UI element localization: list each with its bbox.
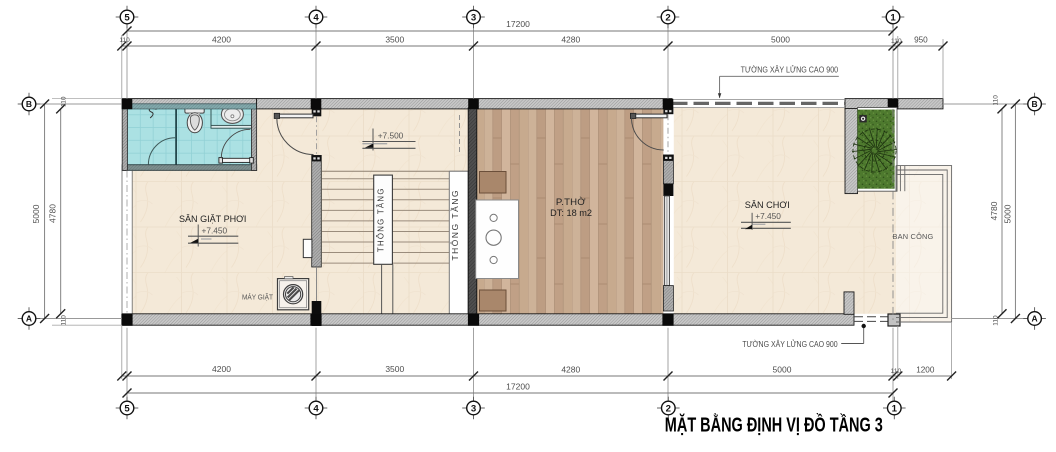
svg-text:4280: 4280 — [561, 35, 580, 45]
svg-text:SÂN GIẶT PHƠI: SÂN GIẶT PHƠI — [179, 214, 247, 225]
svg-text:THÔNG TẦNG: THÔNG TẦNG — [375, 187, 385, 252]
svg-text:110: 110 — [60, 315, 67, 326]
svg-text:110: 110 — [993, 95, 1000, 106]
svg-text:5000: 5000 — [773, 365, 792, 375]
svg-text:1200: 1200 — [916, 366, 935, 375]
svg-text:17200: 17200 — [506, 382, 530, 392]
svg-text:+7.450: +7.450 — [201, 226, 227, 236]
svg-text:MẶT BẰNG ĐỊNH VỊ ĐỒ TẦNG 3: MẶT BẰNG ĐỊNH VỊ ĐỒ TẦNG 3 — [665, 413, 883, 437]
svg-text:110: 110 — [60, 96, 67, 107]
svg-text:3: 3 — [471, 403, 476, 414]
svg-text:5000: 5000 — [1003, 204, 1013, 223]
svg-text:+7.450: +7.450 — [755, 211, 781, 221]
svg-text:1: 1 — [890, 12, 896, 23]
svg-text:B: B — [26, 99, 32, 109]
svg-text:950: 950 — [914, 36, 928, 45]
svg-text:A: A — [1032, 314, 1038, 324]
svg-text:4: 4 — [313, 403, 319, 414]
svg-text:1: 1 — [892, 403, 898, 414]
svg-text:BAN CÔNG: BAN CÔNG — [892, 232, 933, 241]
svg-text:3500: 3500 — [385, 35, 404, 45]
svg-text:5000: 5000 — [31, 204, 41, 223]
svg-text:4780: 4780 — [989, 201, 999, 220]
svg-text:DT: 18 m2: DT: 18 m2 — [550, 208, 592, 218]
svg-text:5000: 5000 — [771, 35, 790, 45]
svg-text:3: 3 — [471, 12, 476, 23]
svg-text:4: 4 — [313, 12, 319, 23]
svg-text:110: 110 — [891, 38, 902, 45]
svg-text:3500: 3500 — [385, 364, 404, 374]
svg-text:B: B — [1032, 99, 1038, 109]
svg-text:4780: 4780 — [47, 204, 57, 223]
svg-text:+7.500: +7.500 — [378, 131, 404, 141]
svg-text:110: 110 — [119, 37, 130, 44]
svg-text:17200: 17200 — [506, 19, 530, 29]
svg-text:TƯỜNG XÂY LỬNG CAO 900: TƯỜNG XÂY LỬNG CAO 900 — [741, 63, 839, 74]
svg-text:4200: 4200 — [212, 364, 231, 374]
svg-text:P.THỜ: P.THỜ — [556, 197, 586, 208]
svg-text:4200: 4200 — [212, 35, 231, 45]
svg-text:4280: 4280 — [561, 365, 580, 375]
svg-text:5: 5 — [124, 403, 130, 414]
svg-text:110: 110 — [890, 368, 901, 375]
svg-text:THÔNG TẦNG: THÔNG TẦNG — [450, 189, 460, 261]
svg-text:SÂN CHƠI: SÂN CHƠI — [745, 200, 790, 211]
svg-text:TƯỜNG XÂY LỬNG CAO 900: TƯỜNG XÂY LỬNG CAO 900 — [742, 338, 838, 349]
svg-text:110: 110 — [993, 315, 1000, 326]
svg-text:MÁY GIẶT: MÁY GIẶT — [242, 292, 274, 301]
svg-text:5: 5 — [124, 12, 130, 23]
svg-text:2: 2 — [665, 12, 670, 23]
svg-text:A: A — [26, 314, 32, 324]
